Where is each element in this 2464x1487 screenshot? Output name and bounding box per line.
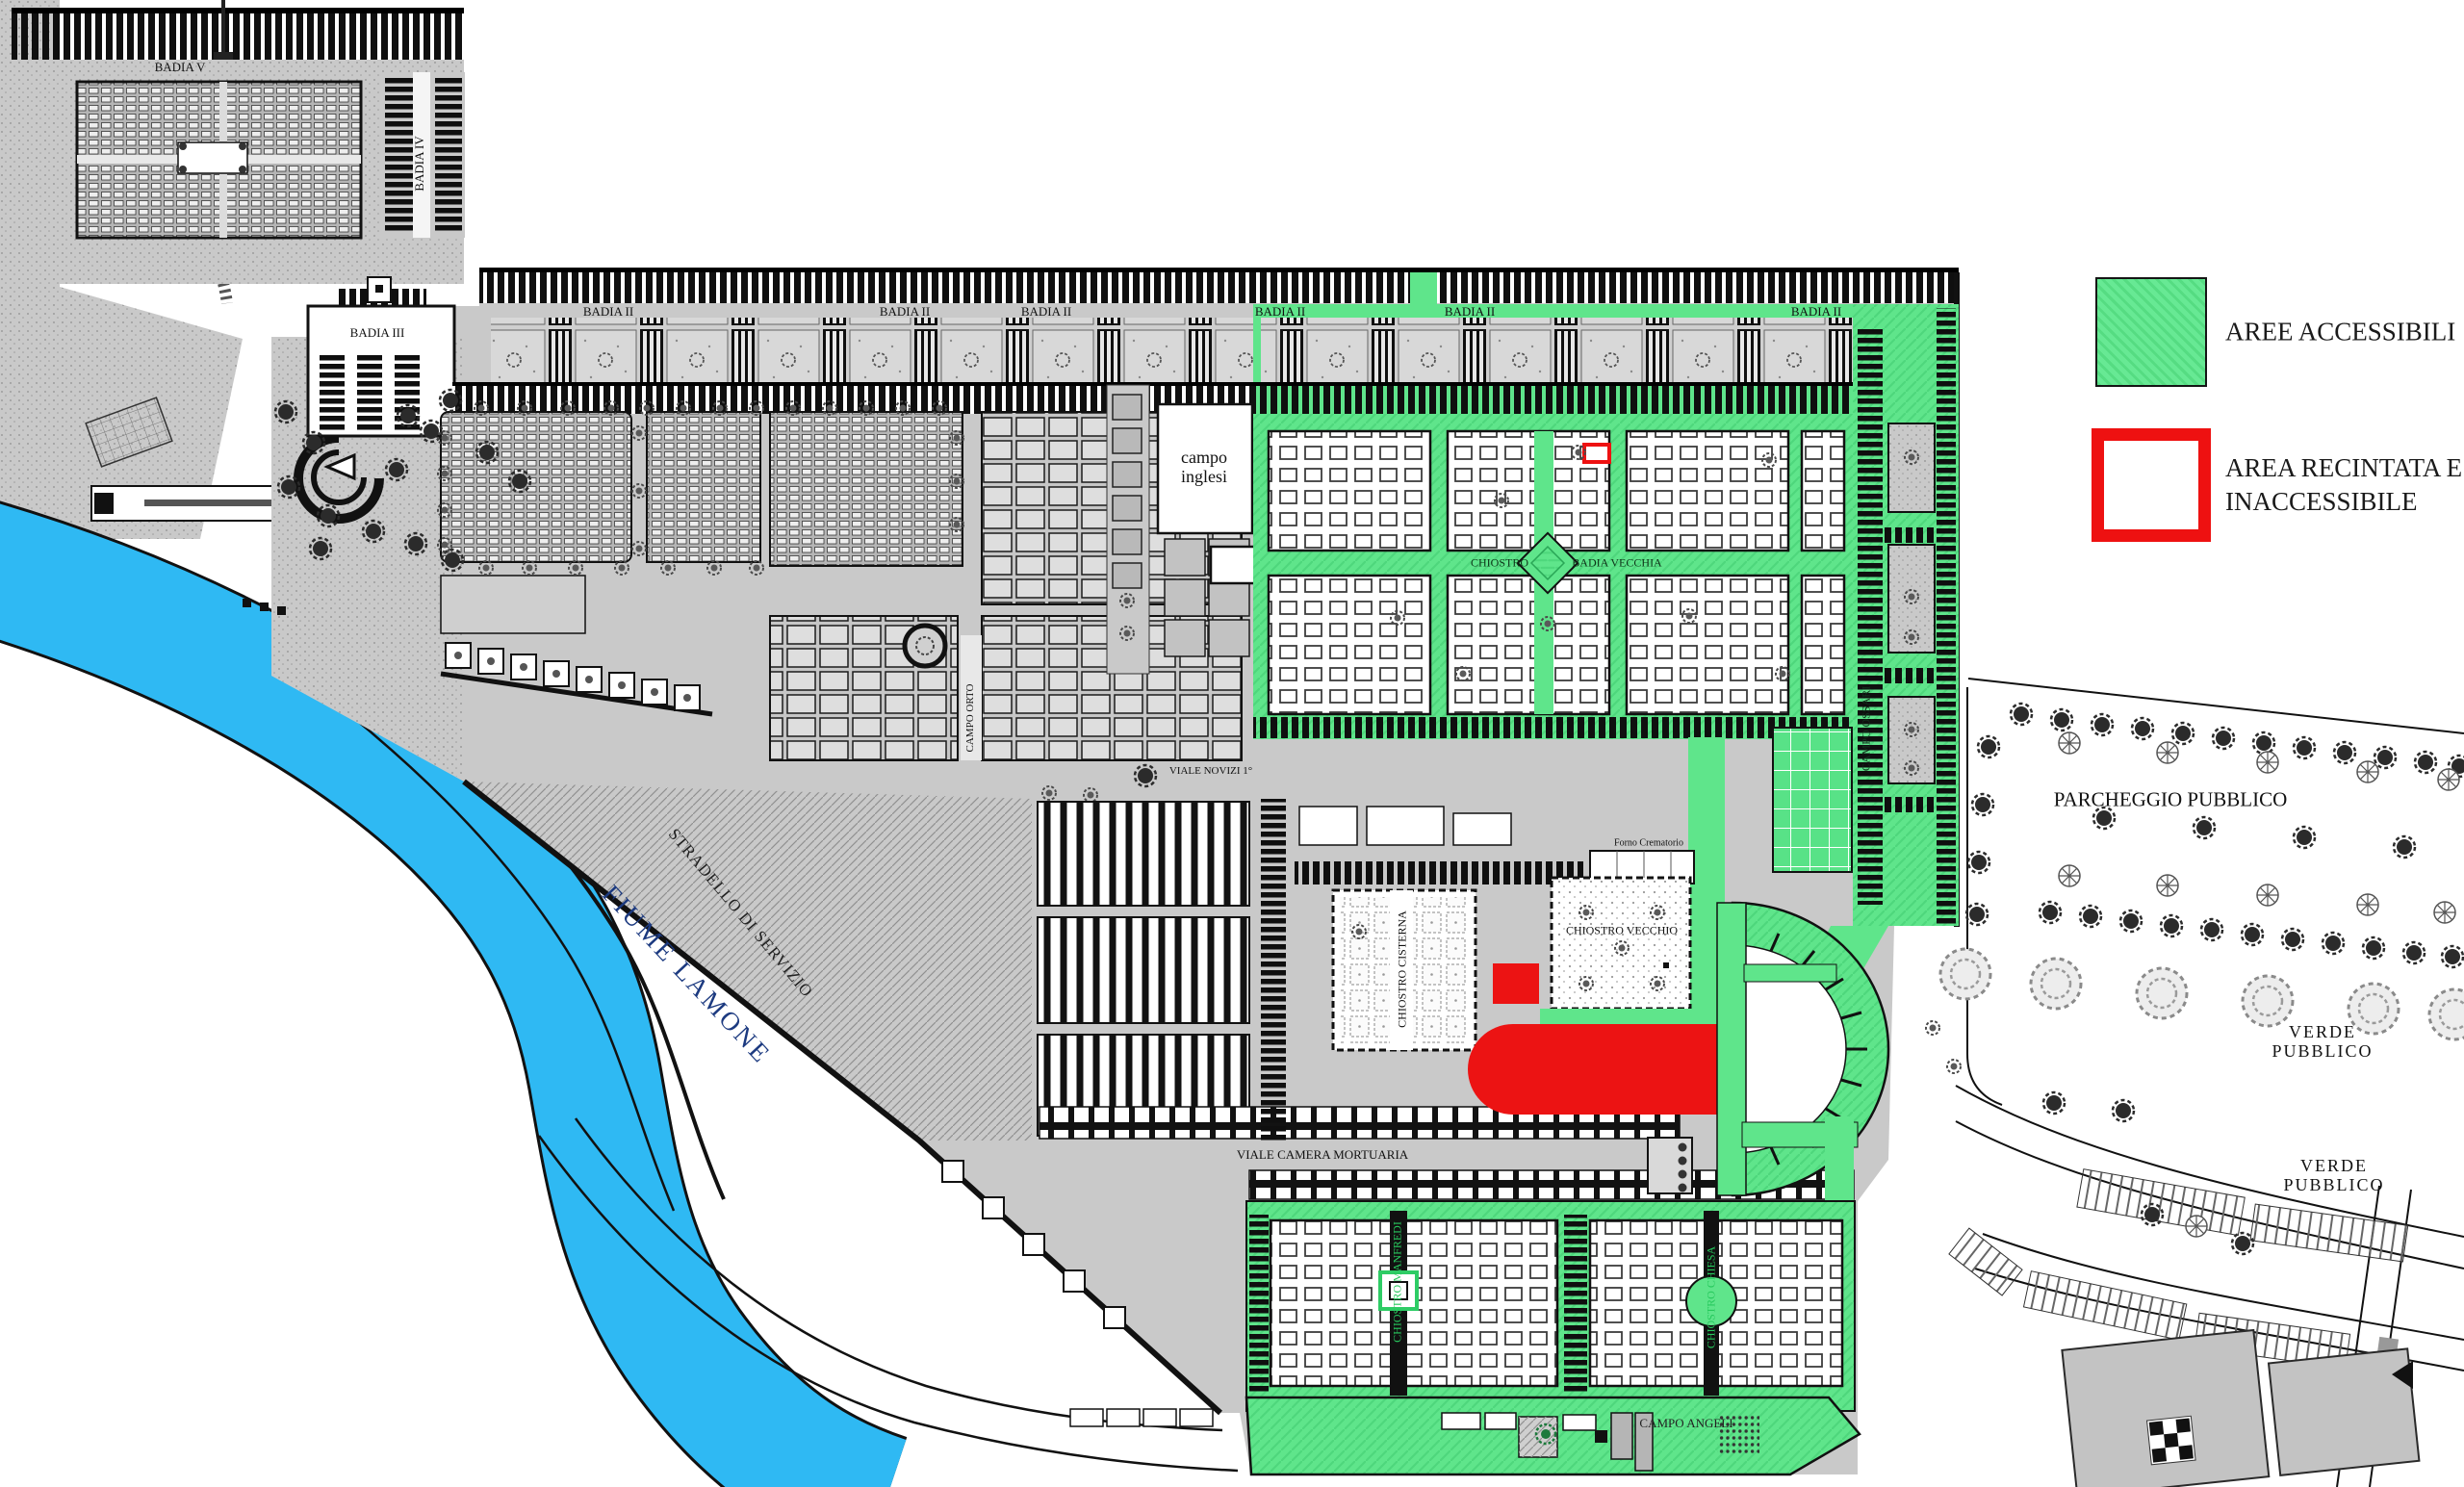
legend-accessible-swatch <box>2095 277 2207 387</box>
campo-inglesi-area <box>1107 385 1257 674</box>
legend-restricted-swatch <box>2092 428 2211 542</box>
badia-iii-building <box>308 277 454 436</box>
legend-accessible-label: AREE ACCESSIBILI <box>2225 318 2455 347</box>
ossari-dots-grid <box>1717 1415 1759 1455</box>
restricted-building-small <box>1493 963 1539 1004</box>
bottom-green-fields <box>1246 1201 1855 1411</box>
strip-plot-blocks <box>1038 802 1249 1136</box>
parcheggio-verde-area <box>1949 679 2464 1487</box>
legend-restricted-label: AREA RECINTATA E INACCESSIBILE <box>2225 451 2464 519</box>
restricted-marker <box>1584 445 1609 462</box>
restricted-church <box>1468 1024 1725 1115</box>
service-buildings <box>2062 1315 2419 1487</box>
campo-inglesi-field <box>1158 404 1252 533</box>
site-plan-drawing <box>0 0 2464 1487</box>
badia-v-block <box>12 0 465 284</box>
campo-angeli-strip <box>1070 1397 1860 1474</box>
circular-plaza <box>905 626 945 666</box>
site-plan-canvas: BADIA VBADIA IVBADIA IIIBADIA IIBADIA II… <box>0 0 2464 1487</box>
green-courtyard <box>1773 728 1852 872</box>
badia-ii-row <box>452 304 1959 414</box>
